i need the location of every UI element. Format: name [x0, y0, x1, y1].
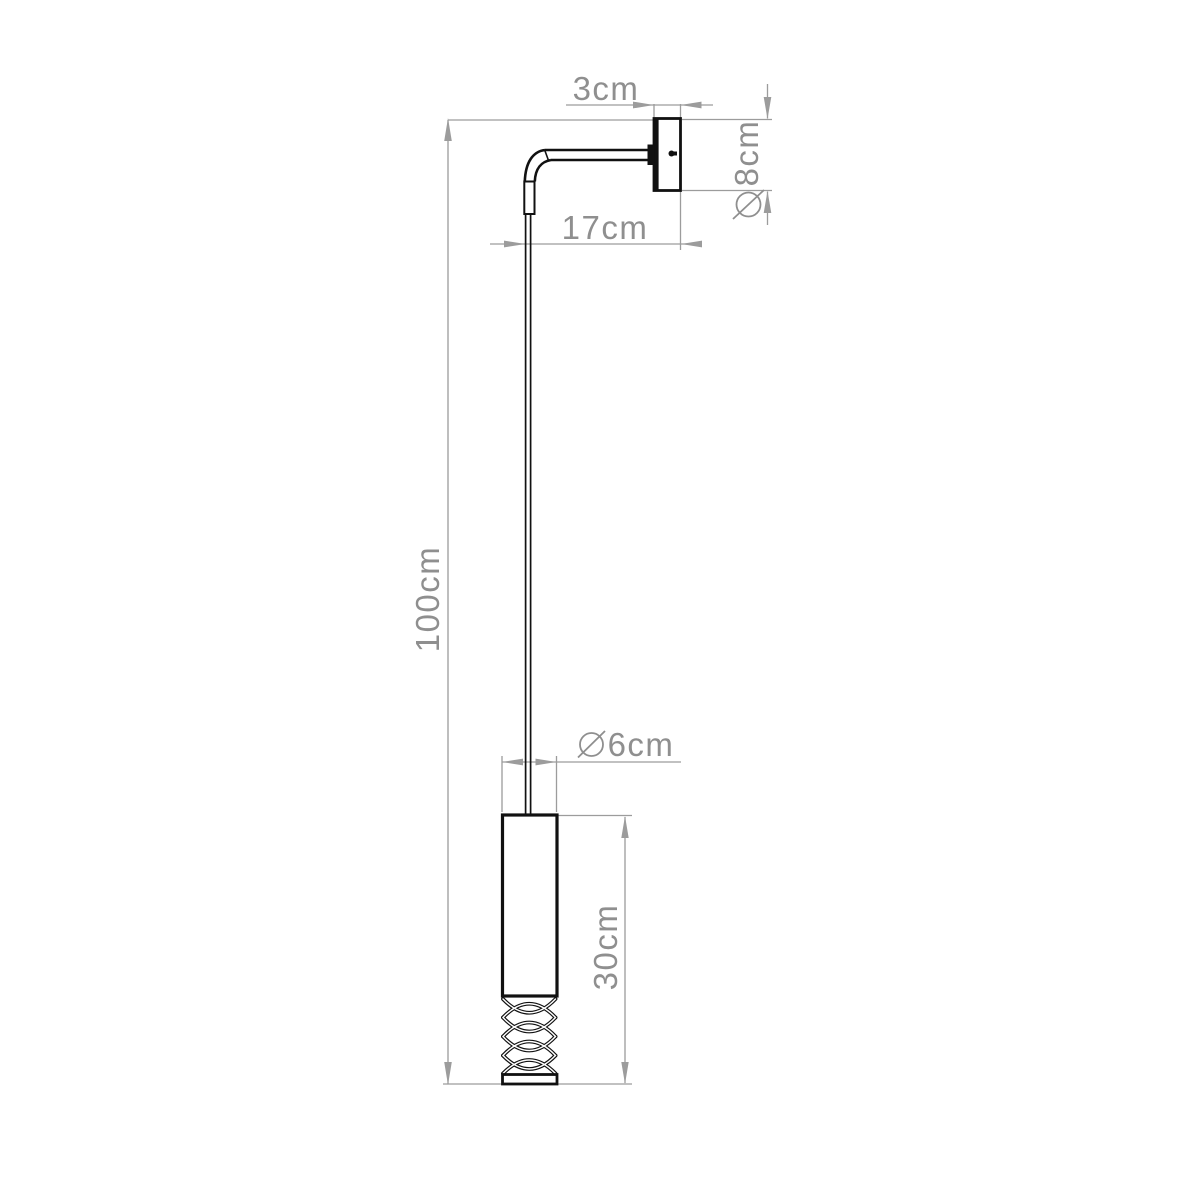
arm-reach-label: 17cm	[562, 209, 649, 246]
shade-end-cap	[503, 1075, 558, 1085]
diameter-symbols	[578, 190, 764, 758]
arrow-up-icon	[764, 191, 772, 213]
coil-highlight	[503, 999, 556, 1074]
mounting-arm	[525, 150, 649, 182]
plate-diameter-label: 8cm	[728, 120, 765, 187]
arrow-left-icon	[681, 102, 702, 109]
arrow-up-icon	[621, 816, 628, 838]
arrow-left-icon	[681, 241, 702, 248]
hanging-height-label: 100cm	[409, 546, 446, 653]
arrow-up-icon	[444, 118, 452, 141]
arm-flange	[648, 145, 655, 166]
arrow-down-icon	[621, 1062, 628, 1084]
arm-sleeve	[524, 182, 534, 215]
arrow-left-icon	[502, 759, 523, 766]
plate-depth-label: 3cm	[573, 70, 640, 107]
arm-curve-inner	[535, 160, 551, 182]
arrow-right-icon	[536, 759, 557, 766]
drawing-canvas: 3cm 8cm 17cm 100cm 6cm 30cm	[0, 0, 1200, 1200]
shade-diameter-label: 6cm	[608, 726, 675, 763]
shade-length-label: 30cm	[587, 904, 624, 991]
arrow-down-icon	[764, 97, 772, 119]
suspension-cable	[526, 214, 531, 814]
dimension-labels: 3cm 8cm 17cm 100cm 6cm 30cm	[409, 70, 765, 990]
diameter-icon	[578, 731, 605, 758]
arrow-down-icon	[444, 1062, 452, 1085]
lamp-dimension-drawing: 3cm 8cm 17cm 100cm 6cm 30cm	[0, 0, 1200, 1200]
wall-plate	[648, 119, 681, 191]
arrow-right-icon	[504, 241, 526, 248]
shade-coil	[503, 999, 556, 1074]
diameter-icon	[733, 190, 764, 219]
shade-body	[503, 815, 558, 996]
